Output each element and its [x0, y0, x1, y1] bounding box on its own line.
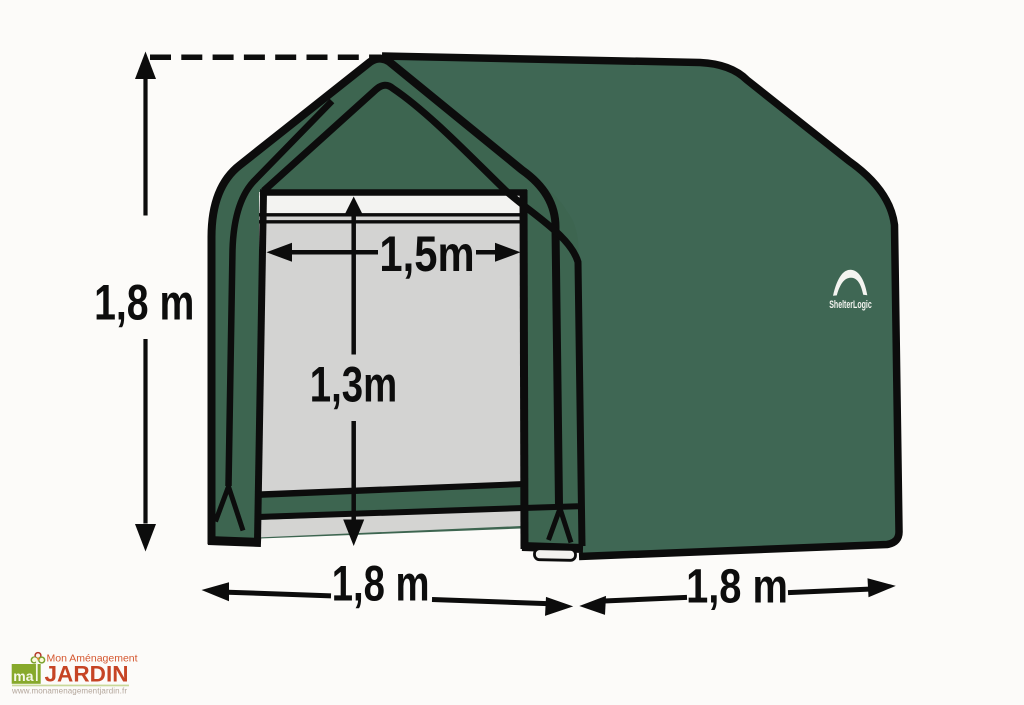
svg-text:1,8 m: 1,8 m [686, 560, 788, 613]
svg-text:1,8 m: 1,8 m [94, 274, 194, 331]
svg-text:JARDIN: JARDIN [45, 662, 129, 687]
svg-text:www.monamenagementjardin.fr: www.monamenagementjardin.fr [11, 687, 127, 696]
svg-text:1,5m: 1,5m [379, 225, 474, 281]
svg-text:ShelterLogic: ShelterLogic [829, 298, 872, 310]
svg-text:1,3m: 1,3m [310, 358, 397, 413]
svg-text:1,8 m: 1,8 m [332, 557, 430, 612]
svg-text:ma: ma [13, 668, 33, 684]
